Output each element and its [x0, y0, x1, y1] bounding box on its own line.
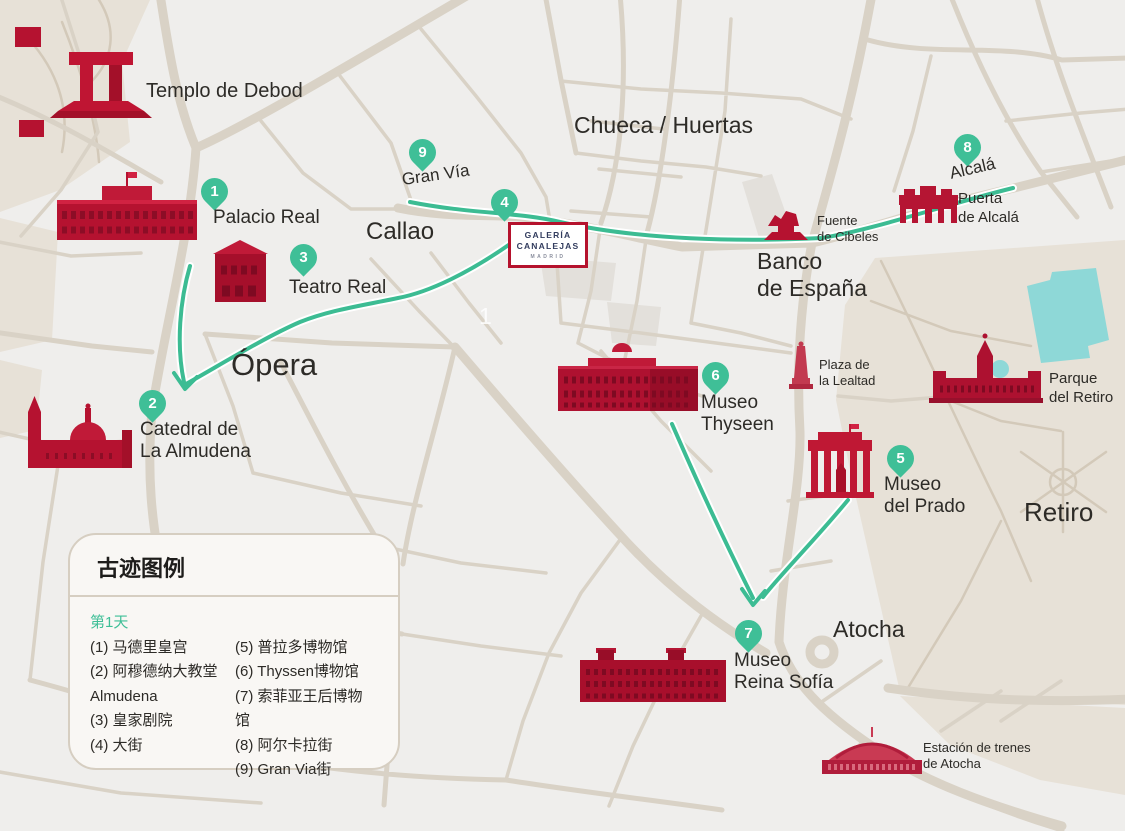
estacion-atocha-icon[interactable] — [822, 727, 922, 774]
plaza-lealtad-obelisk-icon[interactable] — [789, 342, 813, 390]
marker-1-pin[interactable]: 1 — [195, 172, 233, 210]
marker-7-pin[interactable]: 7 — [729, 614, 767, 652]
marker-2-number: 2 — [139, 390, 166, 417]
legend-item: (7) 索菲亚王后博物 — [235, 685, 382, 710]
logo-line1: GALERÍA — [511, 230, 585, 241]
label-plaza-lealtad: Plaza de la Lealtad — [819, 357, 875, 390]
catedral-almudena-icon[interactable] — [28, 396, 132, 468]
marker-3-number: 3 — [290, 244, 317, 271]
marker-2-pin[interactable]: 2 — [133, 384, 171, 422]
marker-6-pin[interactable]: 6 — [696, 356, 734, 394]
label-callao: Callao — [366, 218, 434, 246]
label-retiro: Retiro — [1024, 497, 1093, 528]
legend-title: 古迹图例 — [70, 535, 398, 595]
marker-6-number: 6 — [702, 362, 729, 389]
legend-item: (6) Thyssen博物馆 — [235, 660, 382, 685]
label-teatro-real: Teatro Real — [289, 277, 386, 299]
label-parque-retiro: Parque del Retiro — [1049, 370, 1113, 408]
legend-item: (2) 阿穆德纳大教堂 — [90, 660, 235, 685]
label-palacio-real: Palacio Real — [213, 207, 320, 229]
madrid-itinerary-map: GALERÍA CANALEJAS MADRID 1 2 3 4 5 6 7 8… — [0, 0, 1125, 831]
legend-item: (1) 马德里皇宫 — [90, 636, 235, 661]
legend-item: 馆 — [235, 709, 382, 734]
marker-5-number: 5 — [887, 445, 914, 472]
map-watermark-1: 1 — [479, 303, 492, 330]
marker-3-pin[interactable]: 3 — [284, 238, 322, 276]
legend-panel: 古迹图例 第1天 (1) 马德里皇宫 (2) 阿穆德纳大教堂 Almudena … — [68, 533, 400, 770]
galeria-canalejas-logo[interactable]: GALERÍA CANALEJAS MADRID — [508, 222, 588, 268]
marker-5-pin[interactable]: 5 — [881, 439, 919, 477]
legend-item: Almudena — [90, 685, 235, 710]
marker-9-number: 9 — [409, 139, 436, 166]
logo-line2: CANALEJAS — [511, 241, 585, 252]
label-banco-de-espana: Banco de España — [757, 248, 867, 302]
marker-4-number: 4 — [491, 189, 518, 216]
label-museo-prado: Museo del Prado — [884, 474, 965, 519]
legend-day-label: 第1天 — [90, 611, 382, 636]
label-templo-de-debod: Templo de Debod — [146, 80, 303, 104]
legend-item: (5) 普拉多博物馆 — [235, 636, 382, 661]
marker-7-number: 7 — [735, 620, 762, 647]
legend-item: (9) Gran Via街 — [235, 758, 382, 783]
label-puerta-alcala: Puerta de Alcalá — [958, 190, 1019, 228]
label-museo-thyseen: Museo Thyseen — [701, 392, 774, 437]
legend-item: (8) 阿尔卡拉街 — [235, 734, 382, 759]
marker-4-pin[interactable]: 4 — [485, 183, 523, 221]
teatro-real-icon[interactable] — [213, 240, 268, 302]
museo-thyssen-icon[interactable] — [558, 343, 698, 411]
label-opera: Ópera — [231, 347, 317, 384]
museo-reina-sofia-icon[interactable] — [580, 648, 726, 702]
label-chueca-huertas: Chueca / Huertas — [574, 112, 753, 139]
label-museo-reina-sofia: Museo Reina Sofía — [734, 650, 833, 695]
logo-line3: MADRID — [511, 254, 585, 260]
label-estacion-atocha: Estación de trenes de Atocha — [923, 740, 1031, 773]
legend-item: (4) 大街 — [90, 734, 235, 759]
marker-1-number: 1 — [201, 178, 228, 205]
legend-item: (3) 皇家剧院 — [90, 709, 235, 734]
palacio-real-icon[interactable] — [57, 172, 197, 240]
label-atocha: Atocha — [833, 616, 905, 643]
label-catedral-almudena: Catedral de La Almudena — [140, 419, 251, 464]
label-fuente-cibeles: Fuente de Cibeles — [817, 213, 878, 246]
